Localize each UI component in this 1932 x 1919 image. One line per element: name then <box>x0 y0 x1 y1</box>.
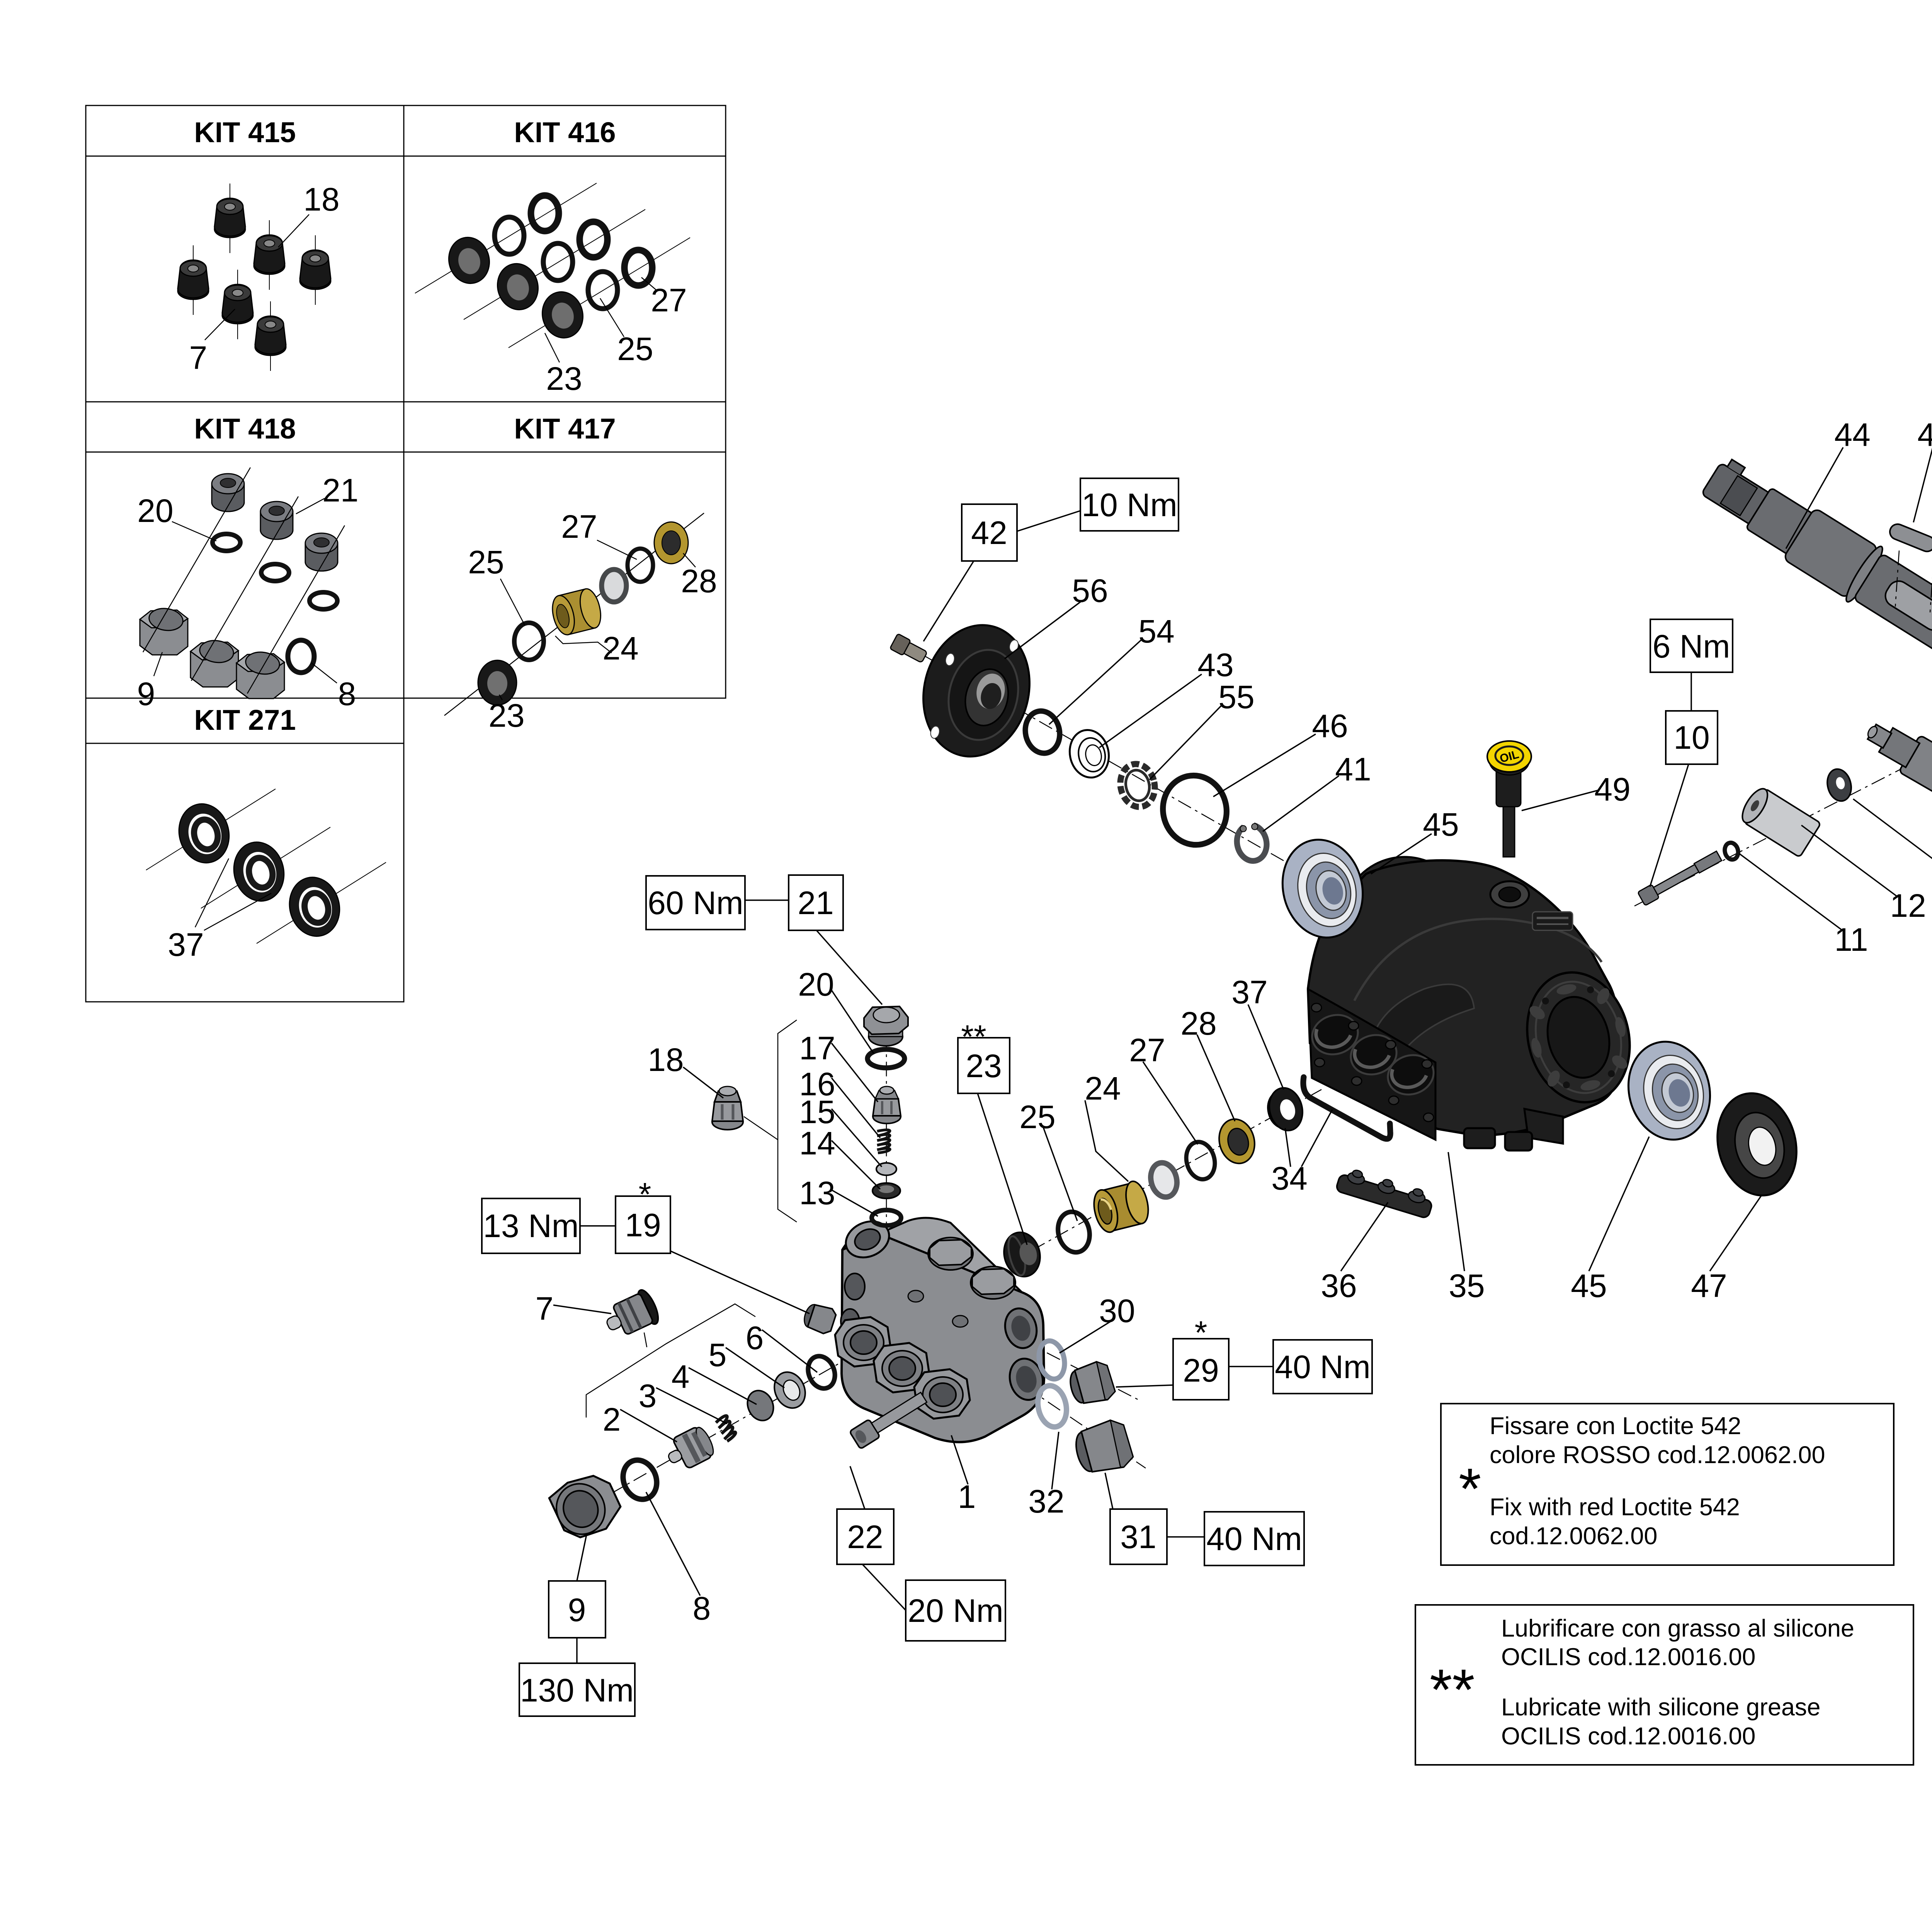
svg-text:27: 27 <box>651 282 687 318</box>
svg-text:15: 15 <box>799 1094 835 1130</box>
svg-text:18: 18 <box>303 181 339 218</box>
svg-text:45: 45 <box>1571 1268 1607 1304</box>
svg-text:42: 42 <box>971 515 1007 551</box>
svg-text:cod.12.0062.00: cod.12.0062.00 <box>1490 1523 1657 1550</box>
svg-text:Lubricate with silicone grease: Lubricate with silicone grease <box>1501 1694 1820 1721</box>
svg-text:17: 17 <box>799 1030 835 1066</box>
svg-text:OCILIS cod.12.0016.00: OCILIS cod.12.0016.00 <box>1501 1644 1755 1671</box>
svg-text:28: 28 <box>1180 1005 1216 1042</box>
svg-text:14: 14 <box>799 1125 835 1161</box>
svg-text:35: 35 <box>1449 1268 1485 1304</box>
svg-text:60 Nm: 60 Nm <box>648 885 743 921</box>
svg-text:9: 9 <box>137 676 155 712</box>
svg-text:25: 25 <box>617 331 653 367</box>
svg-text:*: * <box>1459 1456 1481 1521</box>
svg-text:KIT 416: KIT 416 <box>514 116 616 148</box>
svg-text:41: 41 <box>1335 751 1371 787</box>
svg-text:56: 56 <box>1072 573 1108 609</box>
svg-text:7: 7 <box>536 1290 554 1327</box>
svg-text:20 Nm: 20 Nm <box>908 1593 1003 1629</box>
svg-text:KIT 418: KIT 418 <box>194 413 296 445</box>
svg-text:**: ** <box>1430 1657 1475 1722</box>
svg-text:8: 8 <box>338 676 356 712</box>
svg-text:22: 22 <box>847 1519 883 1555</box>
svg-text:40 Nm: 40 Nm <box>1206 1521 1302 1557</box>
svg-text:24: 24 <box>602 630 638 666</box>
svg-text:KIT 271: KIT 271 <box>194 704 296 736</box>
svg-text:18: 18 <box>648 1042 684 1078</box>
svg-text:37: 37 <box>168 926 204 963</box>
svg-text:20: 20 <box>137 493 173 529</box>
svg-text:10: 10 <box>1673 719 1709 756</box>
svg-text:44: 44 <box>1834 416 1870 453</box>
svg-text:Fix with red Loctite 542: Fix with red Loctite 542 <box>1490 1494 1740 1521</box>
svg-text:19: 19 <box>625 1207 661 1243</box>
svg-text:27: 27 <box>561 508 597 545</box>
svg-text:3: 3 <box>639 1378 657 1414</box>
svg-text:12: 12 <box>1890 887 1926 924</box>
svg-text:13 Nm: 13 Nm <box>483 1208 578 1244</box>
svg-text:46: 46 <box>1312 708 1348 744</box>
svg-text:43: 43 <box>1197 647 1233 683</box>
svg-text:1: 1 <box>958 1479 976 1515</box>
svg-text:8: 8 <box>693 1590 711 1627</box>
svg-text:5: 5 <box>709 1337 727 1373</box>
svg-text:48: 48 <box>1917 416 1932 453</box>
svg-text:Lubrificare con grasso al sili: Lubrificare con grasso al silicone <box>1501 1615 1854 1642</box>
svg-text:40 Nm: 40 Nm <box>1275 1349 1370 1385</box>
svg-text:31: 31 <box>1120 1519 1156 1555</box>
svg-text:130 Nm: 130 Nm <box>520 1672 634 1708</box>
svg-text:6: 6 <box>746 1320 764 1356</box>
svg-text:20: 20 <box>798 966 834 1003</box>
svg-text:54: 54 <box>1138 613 1174 649</box>
svg-text:25: 25 <box>468 544 504 580</box>
svg-text:30: 30 <box>1099 1293 1135 1329</box>
svg-text:36: 36 <box>1321 1268 1357 1304</box>
svg-text:23: 23 <box>546 360 582 397</box>
svg-text:28: 28 <box>681 563 717 599</box>
svg-text:11: 11 <box>1834 921 1868 958</box>
svg-text:4: 4 <box>672 1358 690 1395</box>
svg-text:13: 13 <box>799 1175 835 1211</box>
svg-text:7: 7 <box>189 340 207 376</box>
svg-text:25: 25 <box>1019 1099 1055 1135</box>
svg-text:45: 45 <box>1423 806 1459 843</box>
svg-text:29: 29 <box>1183 1352 1219 1389</box>
svg-text:6 Nm: 6 Nm <box>1653 628 1730 665</box>
svg-text:OCILIS cod.12.0016.00: OCILIS cod.12.0016.00 <box>1501 1723 1755 1750</box>
svg-text:KIT 417: KIT 417 <box>514 413 616 445</box>
svg-text:37: 37 <box>1231 974 1267 1010</box>
svg-text:24: 24 <box>1085 1070 1121 1107</box>
svg-text:47: 47 <box>1691 1268 1727 1304</box>
svg-text:colore ROSSO cod.12.0062.00: colore ROSSO cod.12.0062.00 <box>1490 1441 1825 1469</box>
svg-text:9: 9 <box>568 1592 586 1628</box>
svg-text:10 Nm: 10 Nm <box>1082 487 1177 523</box>
svg-text:34: 34 <box>1271 1160 1307 1197</box>
svg-text:23: 23 <box>966 1048 1002 1084</box>
svg-text:21: 21 <box>322 472 358 508</box>
svg-text:21: 21 <box>798 885 833 921</box>
svg-text:55: 55 <box>1218 679 1254 715</box>
svg-text:32: 32 <box>1028 1483 1064 1520</box>
svg-text:49: 49 <box>1594 771 1630 807</box>
svg-text:KIT 415: KIT 415 <box>194 116 296 148</box>
svg-text:2: 2 <box>603 1401 621 1438</box>
svg-text:Fissare con Loctite 542: Fissare con Loctite 542 <box>1490 1412 1741 1440</box>
svg-text:23: 23 <box>488 697 524 734</box>
svg-text:27: 27 <box>1129 1032 1165 1068</box>
